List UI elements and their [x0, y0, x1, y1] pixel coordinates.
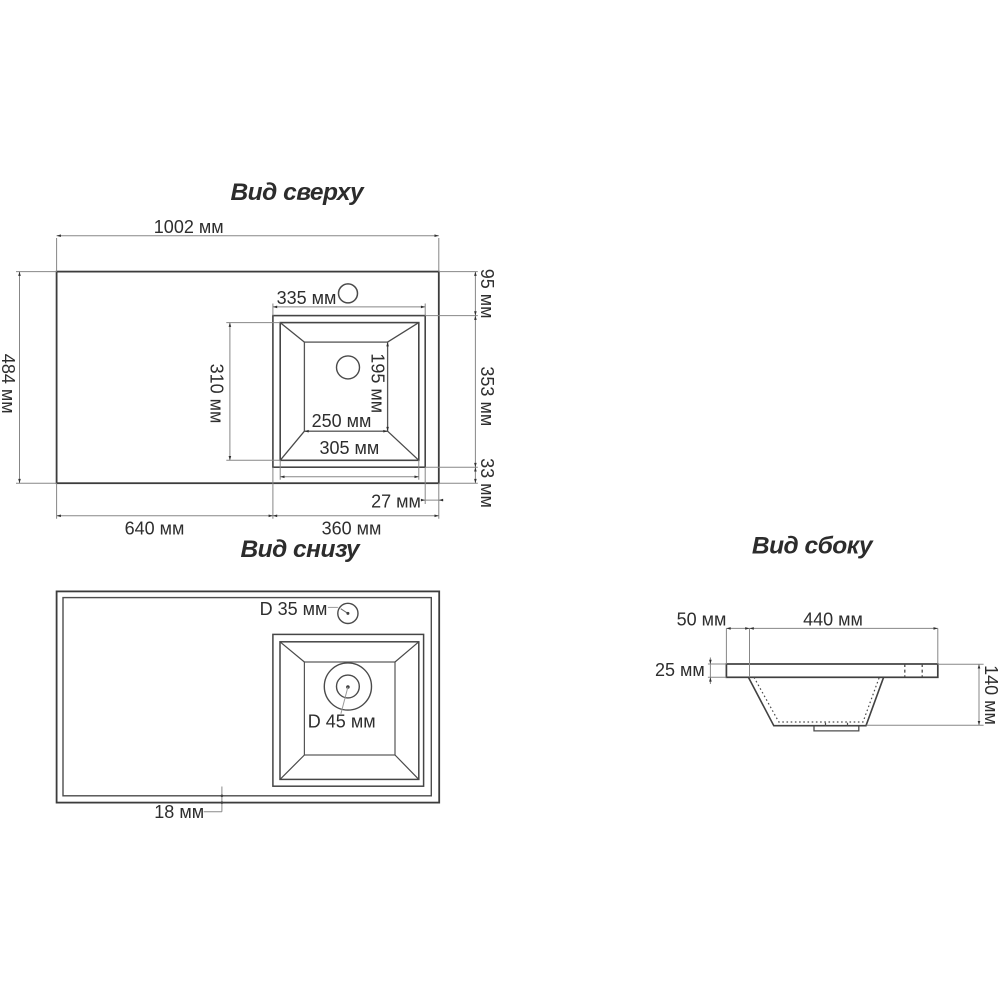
svg-text:50 мм: 50 мм [677, 610, 727, 630]
svg-text:250 мм: 250 мм [312, 411, 372, 431]
svg-text:27 мм: 27 мм [371, 492, 421, 512]
svg-text:484 мм: 484 мм [0, 354, 18, 414]
svg-text:33 мм: 33 мм [477, 458, 497, 508]
svg-text:D 35 мм: D 35 мм [260, 599, 328, 619]
svg-text:440 мм: 440 мм [803, 610, 863, 630]
svg-text:640 мм: 640 мм [125, 519, 185, 539]
svg-text:Вид снизу: Вид снизу [240, 536, 361, 563]
svg-text:353 мм: 353 мм [477, 366, 497, 426]
svg-text:95 мм: 95 мм [477, 269, 497, 319]
svg-text:1002 мм: 1002 мм [154, 217, 224, 237]
svg-text:195 мм: 195 мм [368, 353, 388, 413]
svg-text:335 мм: 335 мм [277, 288, 337, 308]
svg-text:Вид сверху: Вид сверху [230, 179, 365, 206]
svg-text:D 45 мм: D 45 мм [308, 711, 376, 731]
svg-text:310 мм: 310 мм [207, 364, 227, 424]
svg-text:305 мм: 305 мм [320, 438, 380, 458]
svg-text:25 мм: 25 мм [655, 660, 705, 680]
svg-text:Вид сбоку: Вид сбоку [752, 533, 874, 560]
svg-text:140 мм: 140 мм [981, 665, 1000, 725]
svg-text:18 мм: 18 мм [154, 802, 204, 822]
